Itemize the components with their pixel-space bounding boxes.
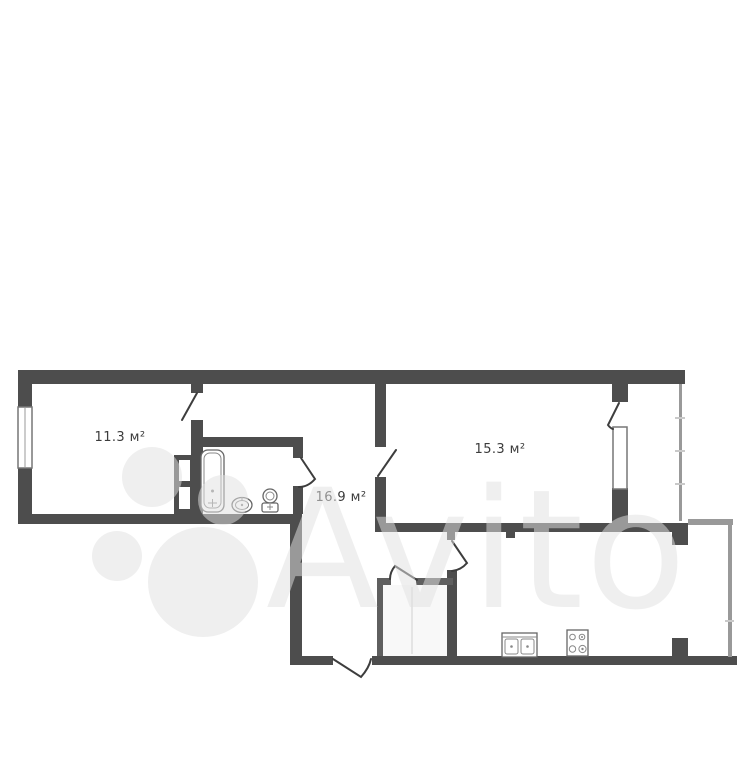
shaft-cell	[179, 487, 190, 509]
wall-upper-block-bottom	[18, 514, 302, 524]
door-balcony	[608, 403, 619, 429]
watermark-text: Avito	[266, 454, 688, 646]
kitchen-top-thin-wall	[688, 519, 733, 525]
wall-room1-door-jamb	[191, 384, 203, 393]
kitchen-right-window-wall	[728, 525, 732, 657]
window-wall-tick	[725, 620, 734, 622]
wall-room2-left-upper	[375, 384, 386, 447]
floor-plan-svg: 11.3 м² 15.3 м² 16.9 м² Avito	[0, 0, 750, 779]
floor-plan-image: 11.3 м² 15.3 м² 16.9 м² Avito	[0, 0, 750, 779]
door-room1	[182, 393, 197, 420]
wall-top	[18, 370, 685, 384]
wall-bottom-main	[372, 656, 737, 665]
door-entrance	[333, 659, 371, 677]
watermark-logo-circle	[198, 475, 248, 525]
watermark-logo-circle	[92, 531, 142, 581]
wall-balcony-jamb-top	[612, 384, 628, 402]
watermark-logo-circle	[148, 527, 258, 637]
wall-left-upper	[18, 370, 32, 408]
watermark: Avito	[92, 447, 688, 646]
wall-bathroom-top	[191, 437, 303, 447]
watermark-logo-circle	[122, 447, 182, 507]
room1-area-label: 11.3 м²	[95, 430, 146, 445]
rail-tick	[675, 417, 685, 419]
wall-bottom-left-segment	[302, 656, 333, 665]
rail-tick	[675, 450, 685, 452]
